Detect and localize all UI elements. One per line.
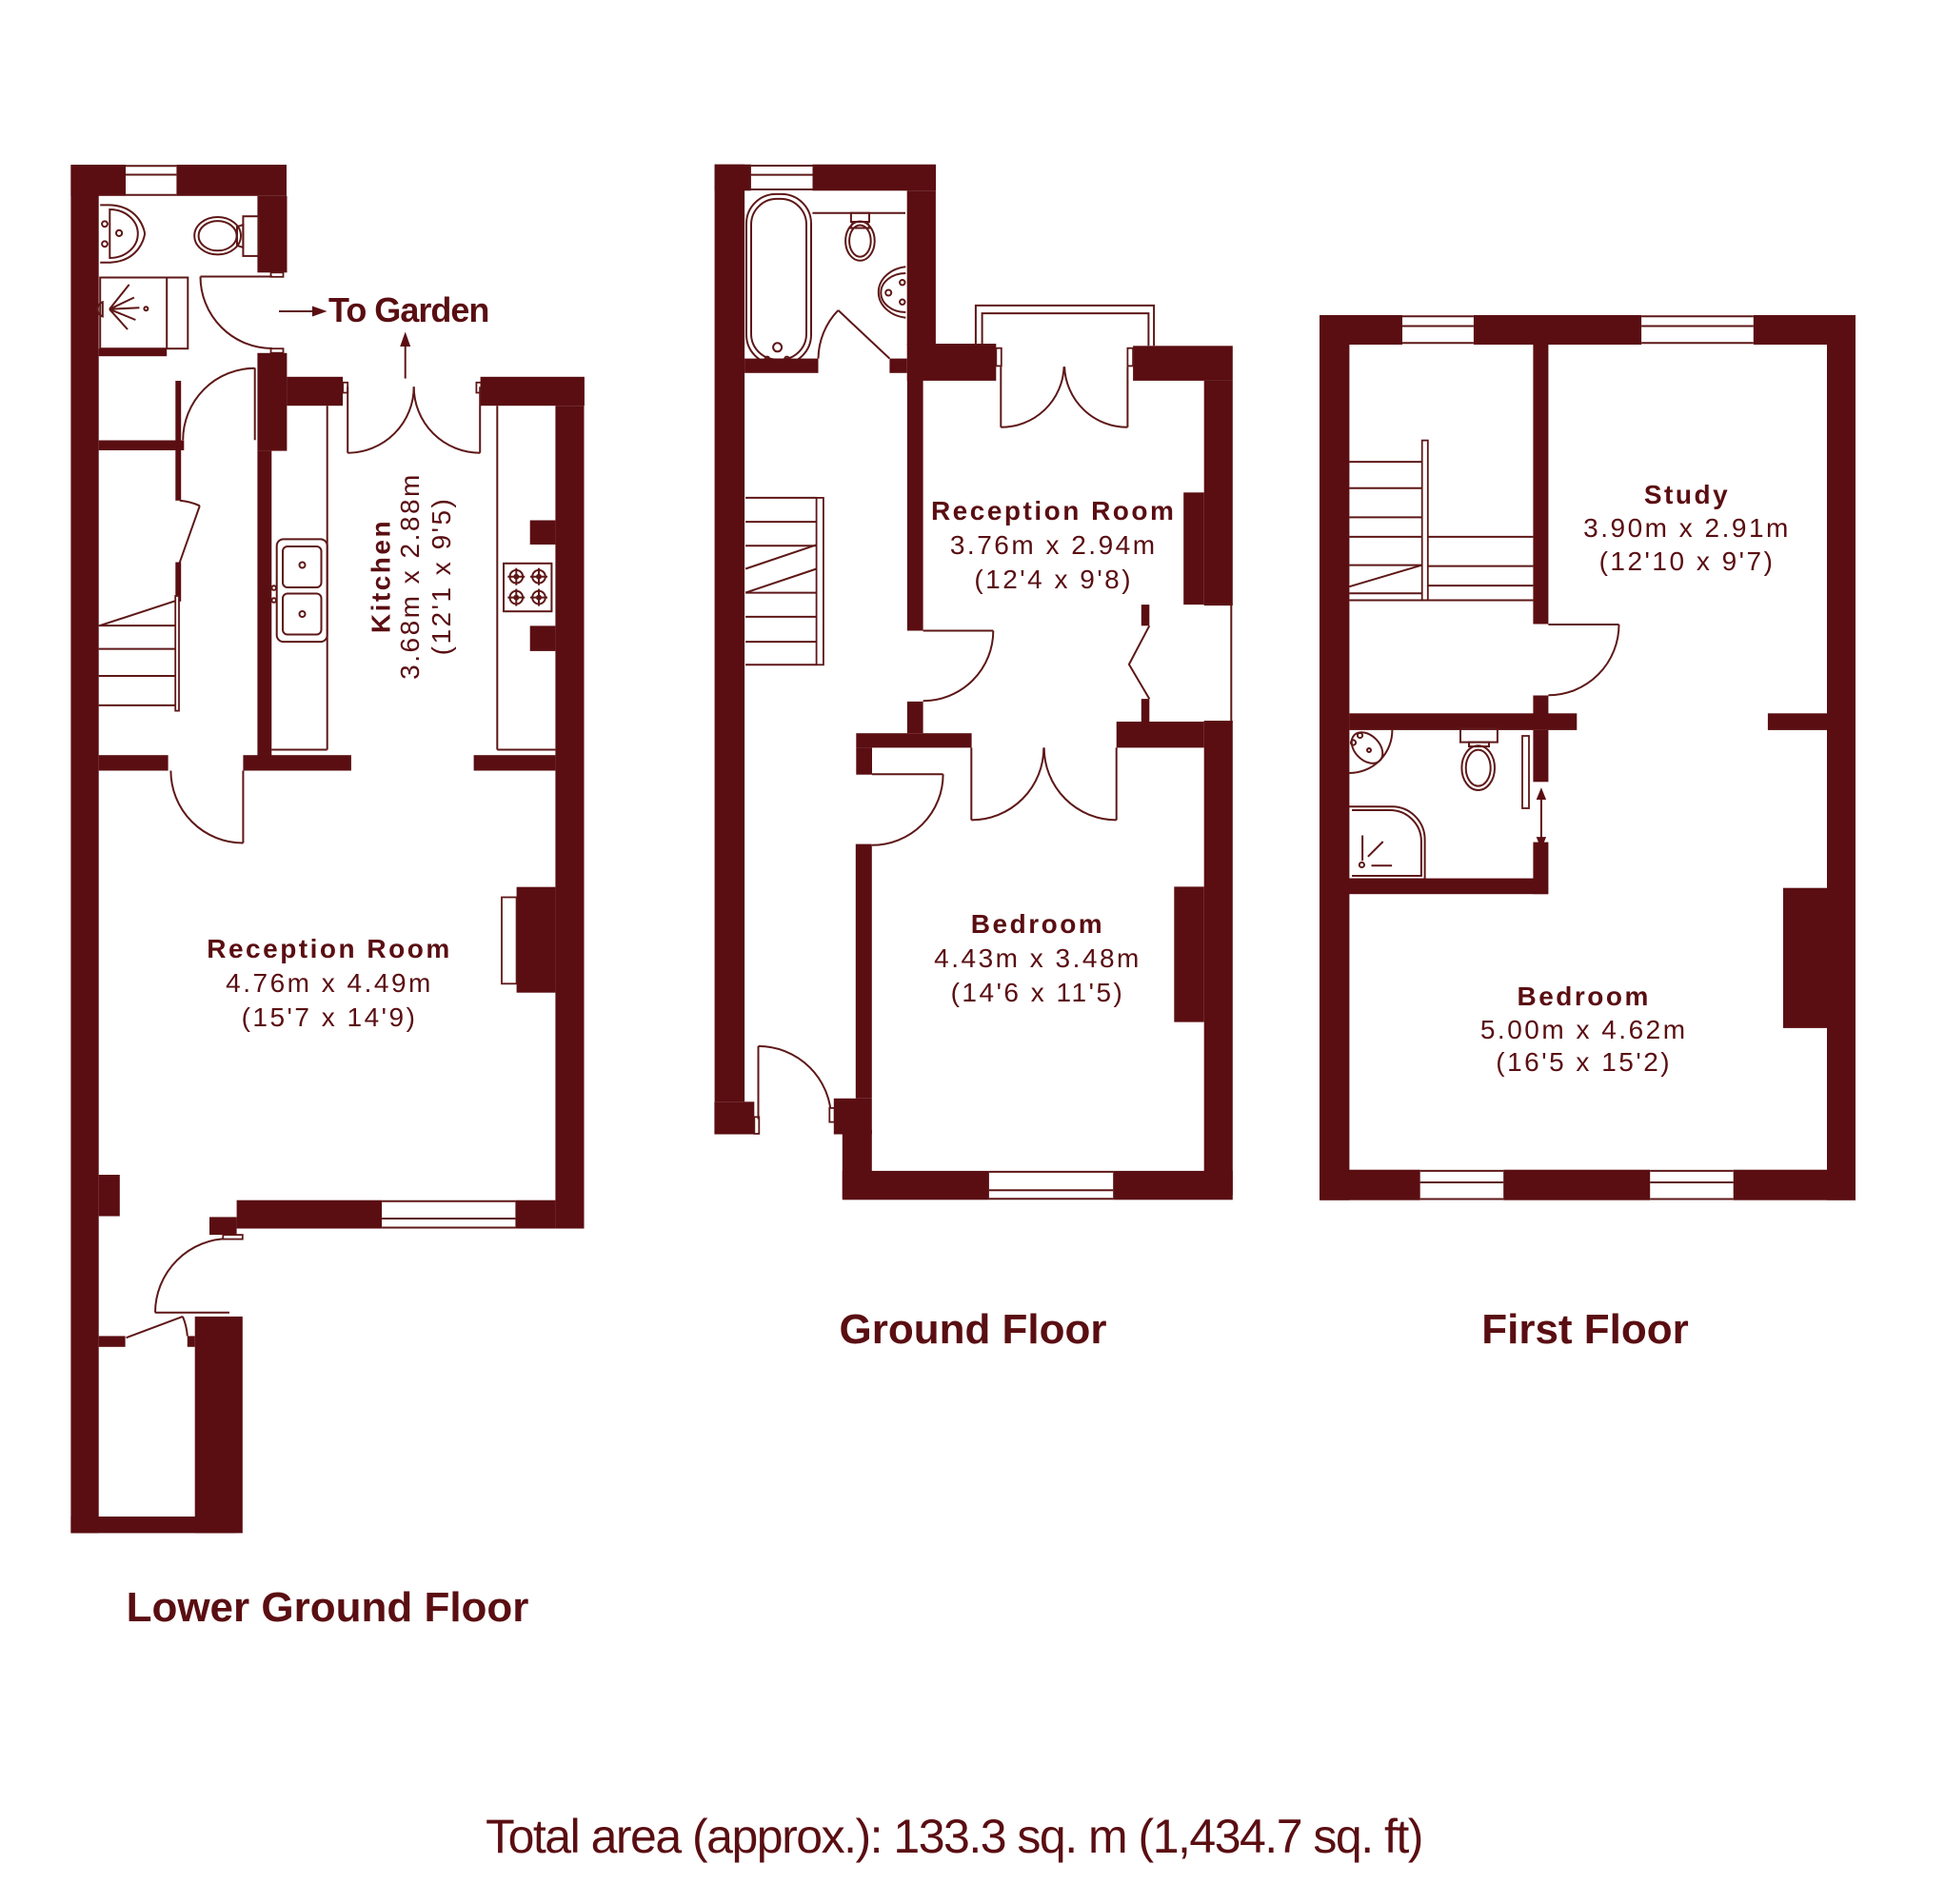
svg-text:(12'10 x 9'7): (12'10 x 9'7) [1599,546,1776,576]
svg-text:Ground Floor: Ground Floor [839,1306,1106,1353]
svg-text:Bedroom: Bedroom [1517,982,1650,1011]
svg-text:5.00m x 4.62m: 5.00m x 4.62m [1480,1015,1688,1044]
svg-text:First Floor: First Floor [1481,1306,1689,1353]
svg-text:(12'4 x 9'8): (12'4 x 9'8) [974,565,1133,594]
svg-text:Kitchen: Kitchen [367,519,396,633]
svg-text:Bedroom: Bedroom [971,909,1104,939]
svg-text:4.43m x 3.48m: 4.43m x 3.48m [934,943,1141,973]
svg-text:(15'7 x 14'9): (15'7 x 14'9) [242,1002,418,1032]
svg-text:Lower Ground Floor: Lower Ground Floor [127,1584,529,1631]
svg-text:4.76m x 4.49m: 4.76m x 4.49m [226,968,433,998]
svg-text:(14'6 x 11'5): (14'6 x 11'5) [951,978,1125,1007]
svg-text:To Garden: To Garden [328,290,488,329]
svg-text:Reception Room: Reception Room [207,934,451,963]
svg-text:3.68m x 2.88m: 3.68m x 2.88m [395,472,425,680]
svg-text:Study: Study [1644,480,1730,509]
svg-text:3.76m x 2.94m: 3.76m x 2.94m [950,530,1158,560]
svg-text:Total area (approx.): 133.3 sq: Total area (approx.): 133.3 sq. m (1,434… [486,1810,1422,1863]
svg-text:(12'1 x 9'5): (12'1 x 9'5) [427,497,456,656]
svg-text:3.90m x 2.91m: 3.90m x 2.91m [1583,513,1791,543]
svg-text:(16'5 x 15'2): (16'5 x 15'2) [1496,1047,1672,1077]
svg-text:Reception Room: Reception Room [931,496,1176,526]
